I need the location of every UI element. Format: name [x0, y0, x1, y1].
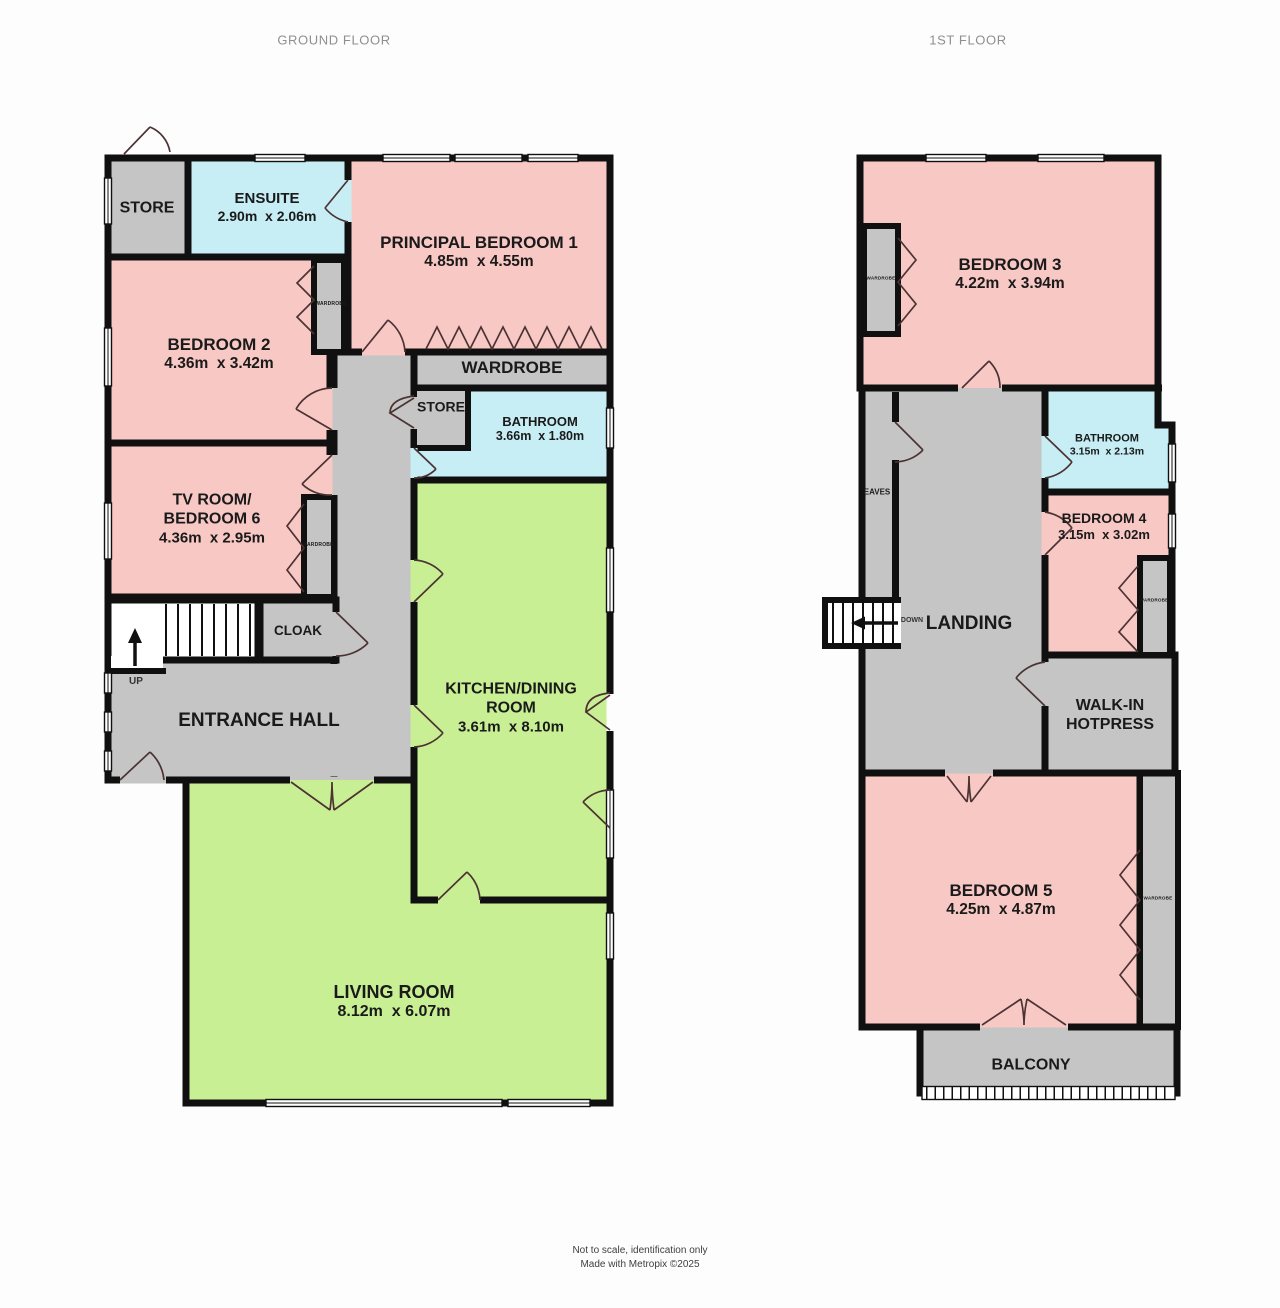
- room-name: ENSUITE: [218, 190, 317, 208]
- room-dims: 2.90m x 2.06m: [218, 208, 317, 225]
- floorplan-canvas: [0, 0, 1280, 1308]
- label-bedroom-2: BEDROOM 2 4.36m x 3.42m: [164, 335, 273, 373]
- label-stairs-up: UP: [129, 676, 143, 688]
- room-name: BATHROOM: [496, 414, 584, 429]
- label-balcony: BALCONY: [991, 1057, 1070, 1076]
- room-name: WARDROBE: [461, 358, 562, 378]
- room-name: BEDROOM 3: [955, 255, 1064, 275]
- label-store-top: STORE: [120, 200, 175, 219]
- room-landing: [862, 388, 1045, 773]
- label-wardrobe-bedroom-4: WARDROBE: [1140, 597, 1169, 602]
- room-name: TV ROOM/ BEDROOM 6: [159, 491, 265, 529]
- label-bedroom-5: BEDROOM 5 4.25m x 4.87m: [946, 881, 1055, 919]
- label-wardrobe-band: WARDROBE: [461, 358, 562, 378]
- room-name: WARDROBE: [867, 275, 896, 280]
- label-kitchen-dining: KITCHEN/DINING ROOM 3.61m x 8.10m: [445, 680, 577, 735]
- room-name: STORE: [120, 200, 175, 219]
- room-name: BEDROOM 4: [1058, 510, 1150, 527]
- room-name: WARDROBE: [302, 543, 333, 549]
- room-dims: 3.15m x 2.13m: [1070, 445, 1144, 457]
- room-dims: 3.61m x 8.10m: [445, 718, 577, 736]
- hall-corridor: [334, 352, 414, 780]
- room-name: WARDROBE: [315, 302, 346, 308]
- label-bathroom-first: BATHROOM 3.15m x 2.13m: [1070, 432, 1144, 457]
- room-name: PRINCIPAL BEDROOM 1: [380, 233, 578, 253]
- room-dims: 8.12m x 6.07m: [334, 1003, 455, 1022]
- room-dims: 3.66m x 1.80m: [496, 429, 584, 444]
- label-living-room: LIVING ROOM 8.12m x 6.07m: [334, 982, 455, 1022]
- room-name: LIVING ROOM: [334, 982, 455, 1003]
- stairs-direction: DOWN: [901, 617, 923, 625]
- label-landing: LANDING: [926, 613, 1013, 635]
- first-floor-title: 1ST FLOOR: [929, 33, 1006, 48]
- door-store-exterior: [124, 127, 170, 154]
- room-store-mid: [414, 388, 468, 448]
- room-name: BALCONY: [991, 1057, 1070, 1076]
- room-name: ENTRANCE HALL: [178, 710, 340, 732]
- label-wardrobe-bedroom-2: WARDROBE: [315, 302, 346, 308]
- label-store-mid: STORE: [417, 399, 465, 416]
- room-name: LANDING: [926, 613, 1013, 635]
- room-dims: 4.22m x 3.94m: [955, 275, 1064, 293]
- room-dims: 4.36m x 2.95m: [159, 529, 265, 547]
- room-dims: 3.15m x 3.02m: [1058, 527, 1150, 542]
- room-name: BATHROOM: [1070, 432, 1144, 445]
- floorplan-page: GROUND FLOOR 1ST FLOOR STORE ENSUITE 2.9…: [0, 0, 1280, 1308]
- label-ensuite: ENSUITE 2.90m x 2.06m: [218, 190, 317, 224]
- label-eaves: EAVES: [864, 487, 891, 496]
- room-dims: 4.36m x 3.42m: [164, 355, 273, 373]
- room-dims: 4.85m x 4.55m: [380, 253, 578, 271]
- footer-line-2: Made with Metropix ©2025: [572, 1258, 707, 1272]
- room-name: EAVES: [864, 487, 891, 496]
- label-cloak: CLOAK: [274, 623, 322, 639]
- label-tv-room: TV ROOM/ BEDROOM 6 4.36m x 2.95m: [159, 491, 265, 546]
- label-principal-bedroom-1: PRINCIPAL BEDROOM 1 4.85m x 4.55m: [380, 233, 578, 271]
- room-dims: 4.25m x 4.87m: [946, 901, 1055, 919]
- footer-disclaimer: Not to scale, identification only Made w…: [572, 1244, 707, 1272]
- room-name: KITCHEN/DINING ROOM: [445, 680, 577, 718]
- wardrobe-strip-bedroom-4: [1140, 558, 1170, 655]
- ground-floor-title: GROUND FLOOR: [277, 33, 390, 48]
- room-name: WALK-IN HOTPRESS: [1066, 697, 1154, 735]
- room-name: CLOAK: [274, 623, 322, 639]
- label-wardrobe-bedroom-3: WARDROBE: [867, 275, 896, 280]
- label-stairs-down: DOWN: [901, 617, 923, 625]
- stairs-direction: UP: [129, 676, 143, 688]
- label-bedroom-4: BEDROOM 4 3.15m x 3.02m: [1058, 510, 1150, 542]
- room-name: WARDROBE: [1140, 597, 1169, 602]
- label-wardrobe-tv-room: WARDROBE: [302, 543, 333, 549]
- stairs-ground: [108, 600, 258, 660]
- ground-floor-plan: [105, 127, 614, 1107]
- room-name: BEDROOM 2: [164, 335, 273, 355]
- label-walk-in-hotpress: WALK-IN HOTPRESS: [1066, 697, 1154, 735]
- room-name: STORE: [417, 399, 465, 416]
- room-name: WARDROBE: [1144, 895, 1173, 900]
- label-bathroom-ground: BATHROOM 3.66m x 1.80m: [496, 414, 584, 444]
- room-name: BEDROOM 5: [946, 881, 1055, 901]
- label-entrance-hall: ENTRANCE HALL: [178, 710, 340, 732]
- label-bedroom-3: BEDROOM 3 4.22m x 3.94m: [955, 255, 1064, 293]
- footer-line-1: Not to scale, identification only: [572, 1244, 707, 1258]
- label-wardrobe-bedroom-5: WARDROBE: [1144, 895, 1173, 900]
